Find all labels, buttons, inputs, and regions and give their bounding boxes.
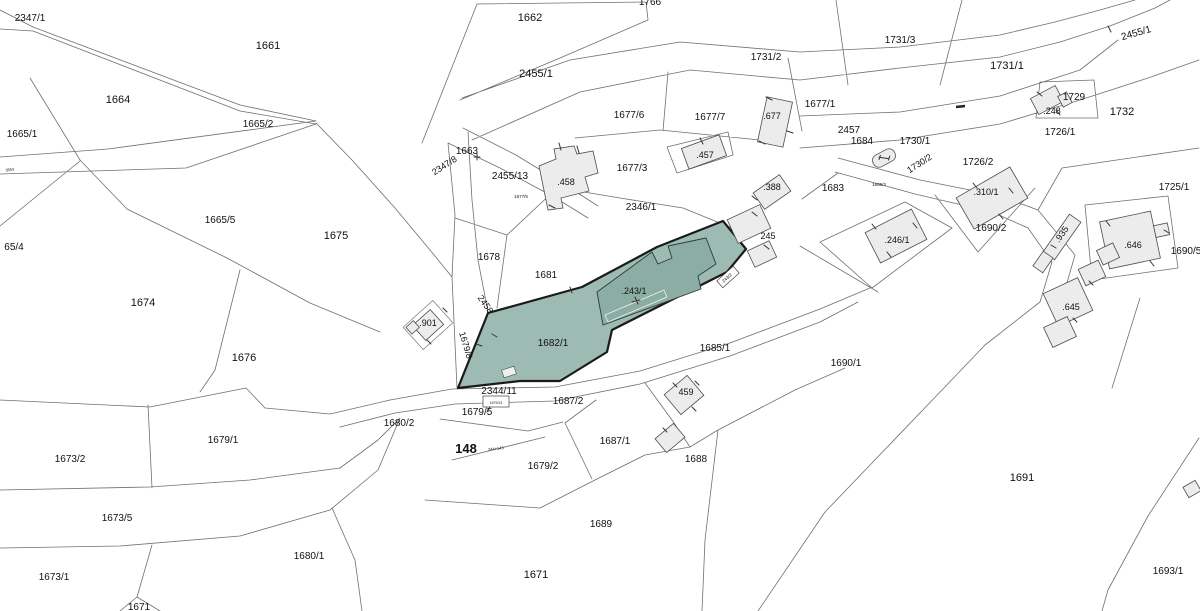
parcel-label-1673-1: 1673/1 — [39, 572, 70, 583]
parcel-label-1685-3: 1685/3 — [872, 182, 886, 187]
parcel-label-1681: 1681 — [535, 270, 558, 281]
building-corner-1693 — [1183, 480, 1200, 497]
parcel-label-1674: 1674 — [131, 297, 155, 309]
cadastral-map[interactable]: 2347/1166116641665/21665/1355365/41665/5… — [0, 0, 1200, 611]
parcel-label--458: .458 — [557, 177, 575, 187]
parcel-label-1677-7: 1677/7 — [695, 112, 726, 123]
parcel-label-1676: 1676 — [232, 352, 256, 364]
parcel-label-1678: 1678 — [478, 252, 501, 263]
parcel-label-2455-13: 2455/13 — [492, 171, 529, 182]
parcel-label-2455-1: 2455/1 — [1120, 24, 1153, 43]
building-646-annex — [1154, 223, 1170, 238]
building-388 — [753, 175, 791, 210]
parcel-label-1679-1: 1679/1 — [208, 435, 239, 446]
parcel-label-1661: 1661 — [256, 40, 280, 52]
parcel-label-1730-2: 1730/2 — [905, 152, 934, 175]
parcel-label-1731-3: 1731/3 — [885, 35, 916, 46]
building-645-annex-north — [1078, 260, 1106, 286]
parcel-label-1729: 1729 — [1063, 92, 1086, 103]
parcel-label--310-1: .310/1 — [973, 187, 998, 197]
parcel-label-1685-1: 1685/1 — [700, 343, 731, 354]
parcel-label-1687-2: 1687/2 — [553, 396, 584, 407]
parcel-label-1732: 1732 — [1110, 106, 1134, 118]
building-245-b — [747, 241, 776, 267]
parcel-label--246-1: .246/1 — [884, 235, 909, 245]
parcel-label-1690-1: 1690/1 — [831, 358, 862, 369]
building-310-1 — [956, 167, 1028, 229]
parcel-label-1726-2: 1726/2 — [963, 157, 994, 168]
parcel-label-1677-5: 1677/5 — [514, 194, 528, 199]
parcel-label-1690-5: 1690/5 — [1171, 246, 1200, 257]
parcel-label-1766: 1766 — [639, 0, 662, 8]
parcel-label-1663: 1663 — [456, 146, 479, 157]
parcel-label-1665-1: 1665/1 — [7, 129, 38, 140]
parcel-label-1671: 1671 — [524, 569, 548, 581]
building-chapel — [870, 147, 897, 170]
parcel-label-1687-1: 1687/1 — [600, 436, 631, 447]
parcel-label-1680-1: 1680/1 — [294, 551, 325, 562]
parcel-label-1679-8: 1679/8 — [457, 330, 475, 359]
parcel-label--248: .248 — [1043, 106, 1061, 116]
parcel-label-1665-2: 1665/2 — [243, 119, 274, 130]
parcel-label-2457: 2457 — [838, 125, 861, 136]
parcel-label-65-4: 65/4 — [4, 242, 24, 253]
parcel-label-1731-1: 1731/1 — [990, 60, 1024, 72]
parcel-label--243-1: .243/1 — [621, 286, 646, 296]
parcel-label-1690-2: 1690/2 — [976, 223, 1007, 234]
parcel-label-1689: 1689 — [590, 519, 613, 530]
building-small-1688 — [655, 423, 685, 452]
parcel-label--645: .645 — [1062, 302, 1080, 312]
parcel-label-1726-1: 1726/1 — [1045, 127, 1076, 138]
parcel-label-1688: 1688 — [685, 454, 708, 465]
parcel-label-1725-1: 1725/1 — [1159, 182, 1190, 193]
highlighted-parcel-group — [458, 221, 746, 388]
parcel-label--457: .457 — [696, 150, 714, 160]
parcel-label-1683: 1683 — [822, 183, 845, 194]
parcel-label-1682-1: 1682/1 — [538, 338, 569, 349]
parcel-label-1679-2: 1679/2 — [528, 461, 559, 472]
parcel-label-245: 245 — [760, 231, 775, 241]
parcel-label-1731-2: 1731/2 — [751, 52, 782, 63]
parcel-label-1680-2: 1680/2 — [384, 418, 415, 429]
parcel-label-1677-3: 1677/3 — [617, 163, 648, 174]
parcel-label--901: .901 — [419, 318, 437, 328]
parcel-label--388: .388 — [763, 182, 781, 192]
parcel-label-1665-5: 1665/5 — [205, 215, 236, 226]
parcel-label--646: .646 — [1124, 240, 1142, 250]
parcel-label-1664: 1664 — [106, 94, 130, 106]
parcel-label-2347-8: 2347/8 — [430, 154, 459, 177]
parcel-label--677: .677 — [763, 111, 781, 121]
parcel-label-1677-6: 1677/6 — [614, 110, 645, 121]
parcel-label-148: 148 — [455, 441, 477, 456]
parcel-label-3553: 3553 — [5, 166, 15, 172]
parcel-label-1662: 1662 — [518, 12, 542, 24]
parcel-label-2346-1: 2346/1 — [626, 202, 657, 213]
building-645-annex-south — [1044, 317, 1077, 348]
buildings — [403, 82, 1200, 498]
parcel-label-1684: 1684 — [851, 136, 874, 147]
parcel-label-244-143: 244+143 — [488, 445, 505, 452]
road-culvert-mark — [956, 106, 965, 107]
parcel-label-1671: 1671 — [128, 602, 151, 611]
parcel-label-1679-5: 1679/5 — [462, 407, 493, 418]
parcel-label-1673-5: 1673/5 — [102, 513, 133, 524]
parcel-label-2344-11: 2344/11 — [481, 386, 517, 397]
cadastral-map-stage: 2347/1166116641665/21665/1355365/41665/5… — [0, 0, 1200, 611]
parcel-label-2455-1: 2455/1 — [519, 68, 553, 80]
parcel-label-1677-1: 1677/1 — [805, 99, 836, 110]
parcel-label-1730-1: 1730/1 — [900, 136, 931, 147]
parcel-label-1693-1: 1693/1 — [1153, 566, 1184, 577]
parcel-label-1673-2: 1673/2 — [55, 454, 86, 465]
parcel-label-1675: 1675 — [324, 230, 348, 242]
building-677 — [758, 97, 793, 147]
parcel-label-1679-13: 1679/13 — [490, 401, 503, 405]
parcel-label-459: 459 — [678, 387, 693, 397]
parcel-label-1691: 1691 — [1010, 472, 1034, 484]
parcel-label-2347-1: 2347/1 — [15, 13, 46, 24]
